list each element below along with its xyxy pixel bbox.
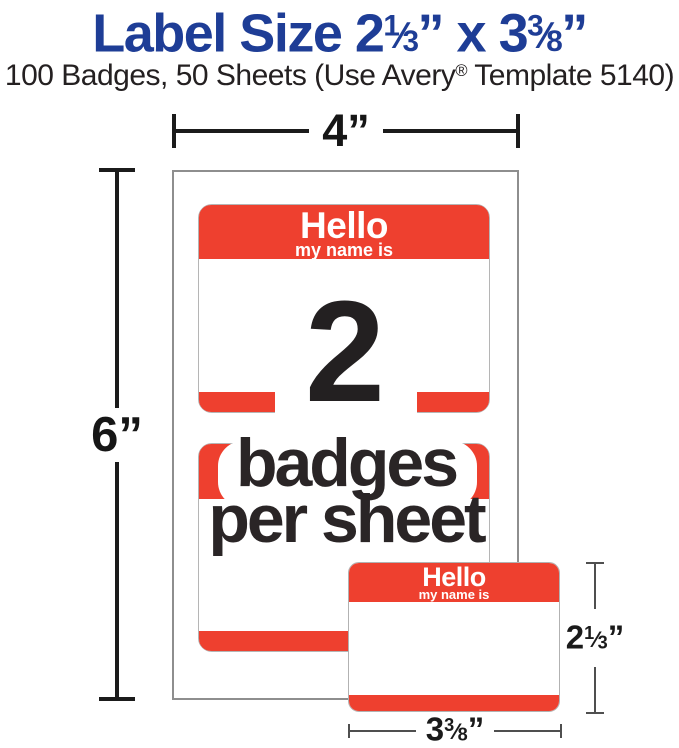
badge-count: 2 [198, 280, 490, 424]
dimension-line [115, 172, 119, 408]
label-size-diagram: Label Size 21⁄3” x 33⁄8” 100 Badges, 50 … [0, 0, 679, 742]
inch-mark: ” [118, 408, 143, 462]
sheet-height-label: 6” [91, 413, 143, 457]
my-name-is-text: my name is [199, 242, 489, 259]
dimension-cap-bottom [586, 712, 604, 714]
sample-badge: Hello my name is [348, 562, 560, 712]
badge-count-caption: badges per sheet [156, 435, 536, 547]
dimension-line [494, 730, 560, 732]
dimension-line [115, 462, 119, 698]
dimension-line [176, 129, 309, 133]
inch-mark: ” [468, 711, 485, 748]
sheet-height-dimension: 6” [98, 168, 136, 701]
sheet-width-dimension: 4” [172, 112, 520, 150]
registered-trademark-icon: ® [455, 62, 467, 80]
inch-mark: ” [347, 105, 370, 156]
hello-text: Hello [349, 566, 559, 589]
inch-mark: ” [608, 619, 625, 656]
badge-width-dimension: 33⁄8” [348, 719, 562, 742]
dimension-line [594, 667, 596, 712]
sheet-width-label: 4” [322, 112, 370, 150]
badge-header-band: Hello my name is [199, 205, 489, 259]
subtitle-text-post: Template 5140) [467, 59, 674, 92]
dimension-cap-right [560, 724, 562, 738]
badge-header-band: Hello my name is [349, 563, 559, 602]
dimension-line [350, 730, 416, 732]
my-name-is-text: my name is [349, 589, 559, 601]
dimension-cap-bottom [99, 697, 135, 701]
badge-height-dimension: 21⁄3” [586, 562, 604, 714]
badge-footer-band [349, 695, 559, 711]
hello-text: Hello [199, 209, 489, 242]
subtitle-text: 100 Badges, 50 Sheets (Use Avery [5, 59, 455, 92]
dimension-cap-right [516, 114, 520, 148]
caption-line2: per sheet [156, 491, 536, 547]
badge-height-label: 21⁄3” [566, 615, 624, 660]
dimension-line [383, 129, 516, 133]
dimension-line [594, 564, 596, 609]
page-subtitle: 100 Badges, 50 Sheets (Use Avery® Templa… [0, 54, 679, 93]
